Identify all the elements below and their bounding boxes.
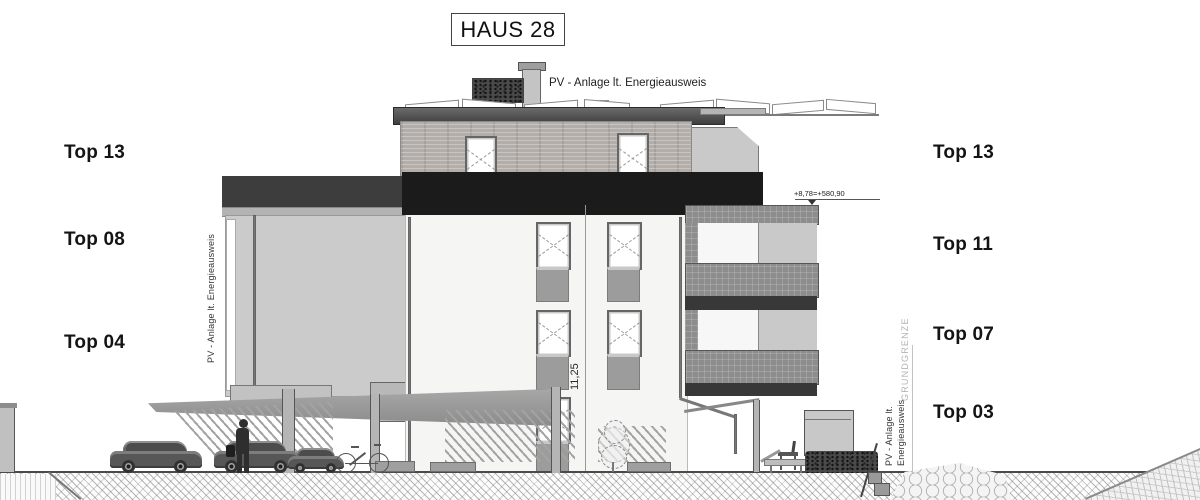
pv-annotation-right-line1: PV - Anlage lt. [884,406,894,466]
drawing-title-box: HAUS 28 [451,13,565,46]
window-spandrel [536,267,569,302]
unit-label-right-4: Top 03 [933,402,994,424]
car [110,430,202,473]
balcony-slab [685,296,817,310]
elevation-drawing: HAUS 28 [0,0,1200,500]
stone-paving [890,461,1012,500]
tree-trunk [612,462,614,472]
bicycle [336,444,390,473]
level-marker-icon [808,200,816,205]
car-wheel [295,463,305,473]
facade-trim [226,219,236,391]
bicycle-seatpost [351,446,359,448]
person-torso [236,428,249,454]
balcony-railing [685,350,819,385]
boundary-pillar [0,408,15,472]
threshold [430,462,476,472]
balcony-railing [685,263,819,298]
level-annotation: +8,78=+580,90 [794,189,845,198]
bicycle-handlebar [374,444,381,446]
storage-box-lid-line [805,419,851,420]
drawing-title: HAUS 28 [460,17,555,43]
balcony-opening [698,310,758,350]
person-leg [244,453,249,473]
person [231,419,255,473]
unit-label-right-1: Top 13 [933,142,994,164]
threshold [627,462,671,472]
balcony-pier [685,223,698,263]
balcony-pier [685,310,698,350]
person-leg [237,453,242,473]
foundation-block [874,483,890,496]
person-head [239,419,248,428]
canopy-post [753,400,760,472]
boundary-line [912,345,913,473]
boundary-label: GRUNDGRENZE [900,317,910,401]
unit-label-right-2: Top 11 [933,234,993,256]
retaining-wall-section [0,474,56,500]
tree [601,445,627,469]
carport-post [551,387,561,473]
unit-label-left-1: Top 13 [64,142,125,164]
balcony-glazing [758,310,817,350]
unit-label-left-2: Top 08 [64,229,125,251]
lounge-leg [770,465,772,473]
window-spandrel [607,267,640,302]
rear-roof-slab [700,108,766,115]
car-wheel [274,460,287,473]
downpipe [734,414,737,454]
dimension-line [585,205,586,472]
downpipe [253,215,256,395]
briefcase [226,445,235,457]
balcony-opening [698,223,758,263]
unit-label-left-3: Top 04 [64,332,125,354]
downpipe [679,217,682,398]
ground-section-hatch [0,471,1200,500]
tree [604,420,626,444]
pv-panel [772,100,824,116]
downpipe [408,217,411,467]
storage-box [804,410,854,456]
lounge-leg [800,465,802,473]
car-wheel [174,460,187,473]
balcony-glazing [758,223,817,263]
unit-label-right-3: Top 07 [933,324,994,346]
pv-annotation-top: PV - Anlage lt. Energieausweis [549,77,706,89]
window [607,310,642,357]
window [536,310,571,357]
balcony-railing [685,205,819,225]
car-wheel [326,463,336,473]
pv-panel [826,99,876,114]
window [607,222,642,270]
stair-house [686,127,759,175]
height-dimension: 11,25 [569,363,581,390]
pv-annotation-left: PV - Anlage lt. Energieausweis [206,234,216,363]
window [536,222,571,270]
window-spandrel [536,354,569,390]
car-wheel [122,460,135,473]
attic-band-left [222,176,402,207]
balcony-slab [685,383,817,396]
pv-annotation-right-line2: Energieausweis [896,400,906,466]
window-spandrel [607,354,640,390]
